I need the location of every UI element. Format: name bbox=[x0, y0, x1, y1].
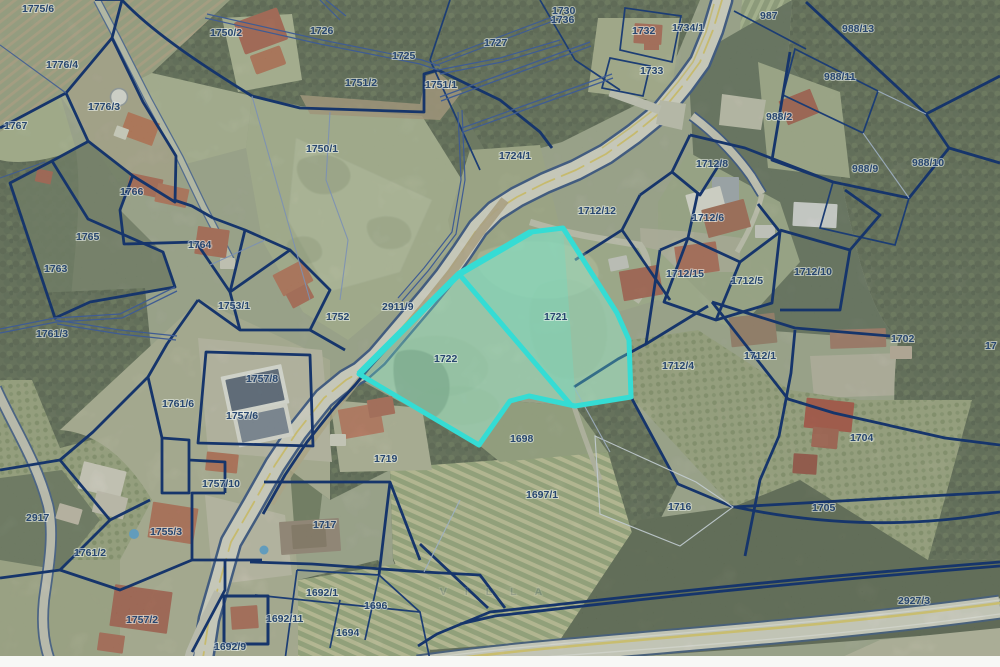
svg-text:988/13: 988/13 bbox=[842, 23, 874, 35]
svg-text:2911/9: 2911/9 bbox=[382, 301, 414, 313]
svg-text:VILLA: VILLA bbox=[440, 586, 560, 598]
svg-text:1704: 1704 bbox=[850, 432, 874, 444]
svg-text:1765: 1765 bbox=[76, 231, 100, 243]
svg-text:1751/2: 1751/2 bbox=[345, 77, 377, 89]
svg-text:1776/3: 1776/3 bbox=[88, 101, 120, 113]
svg-text:1712/5: 1712/5 bbox=[731, 275, 763, 287]
svg-text:1712/10: 1712/10 bbox=[794, 266, 832, 278]
svg-text:1692/1: 1692/1 bbox=[306, 587, 338, 599]
svg-text:1712/12: 1712/12 bbox=[578, 205, 616, 217]
svg-text:1734/1: 1734/1 bbox=[672, 22, 704, 34]
svg-text:1712/1: 1712/1 bbox=[744, 350, 776, 362]
svg-text:1721: 1721 bbox=[544, 311, 568, 323]
svg-text:987: 987 bbox=[760, 10, 778, 22]
svg-text:1766: 1766 bbox=[120, 186, 144, 198]
svg-text:1724/1: 1724/1 bbox=[499, 150, 531, 162]
svg-text:1722: 1722 bbox=[434, 353, 458, 365]
svg-text:1776/4: 1776/4 bbox=[46, 59, 78, 71]
svg-text:1755/3: 1755/3 bbox=[150, 526, 182, 538]
svg-text:1727: 1727 bbox=[484, 37, 508, 49]
svg-text:1702: 1702 bbox=[891, 333, 915, 345]
svg-text:1712/15: 1712/15 bbox=[666, 268, 704, 280]
svg-text:1696: 1696 bbox=[364, 600, 388, 612]
svg-text:1692/11: 1692/11 bbox=[266, 613, 304, 625]
svg-text:988/11: 988/11 bbox=[824, 71, 856, 83]
svg-text:1732: 1732 bbox=[632, 25, 656, 37]
svg-text:1692/9: 1692/9 bbox=[214, 641, 246, 653]
svg-text:1763: 1763 bbox=[44, 263, 68, 275]
svg-text:1757/2: 1757/2 bbox=[126, 614, 158, 626]
svg-text:1717: 1717 bbox=[313, 519, 337, 531]
svg-text:988/10: 988/10 bbox=[912, 157, 944, 169]
svg-text:1757/6: 1757/6 bbox=[226, 410, 258, 422]
svg-text:17: 17 bbox=[985, 340, 997, 352]
svg-text:2917: 2917 bbox=[26, 512, 50, 524]
svg-text:1775/6: 1775/6 bbox=[22, 3, 54, 15]
svg-text:1719: 1719 bbox=[374, 453, 398, 465]
svg-text:1757/8: 1757/8 bbox=[246, 373, 278, 385]
svg-text:1697/1: 1697/1 bbox=[526, 489, 558, 501]
svg-text:1767: 1767 bbox=[4, 120, 28, 132]
svg-text:1761/3: 1761/3 bbox=[36, 328, 68, 340]
svg-text:1712/4: 1712/4 bbox=[662, 360, 694, 372]
svg-text:1730: 1730 bbox=[552, 5, 576, 17]
svg-text:1725: 1725 bbox=[392, 50, 416, 62]
svg-text:1757/10: 1757/10 bbox=[202, 478, 240, 490]
svg-text:1750/2: 1750/2 bbox=[210, 27, 242, 39]
svg-text:1753/1: 1753/1 bbox=[218, 300, 250, 312]
svg-text:2927/3: 2927/3 bbox=[898, 595, 930, 607]
svg-text:1694: 1694 bbox=[336, 627, 360, 639]
svg-text:1705: 1705 bbox=[812, 502, 836, 514]
svg-text:1752: 1752 bbox=[326, 311, 350, 323]
svg-text:1716: 1716 bbox=[668, 501, 692, 513]
svg-text:1750/1: 1750/1 bbox=[306, 143, 338, 155]
svg-text:1751/1: 1751/1 bbox=[425, 79, 457, 91]
svg-text:1712/8: 1712/8 bbox=[696, 158, 728, 170]
svg-text:1726: 1726 bbox=[310, 25, 334, 37]
svg-text:1712/6: 1712/6 bbox=[692, 212, 724, 224]
svg-text:1761/6: 1761/6 bbox=[162, 398, 194, 410]
svg-text:988/2: 988/2 bbox=[766, 111, 792, 123]
svg-text:1761/2: 1761/2 bbox=[74, 547, 106, 559]
svg-text:1733: 1733 bbox=[640, 65, 664, 77]
svg-text:1698: 1698 bbox=[510, 433, 534, 445]
svg-text:1764: 1764 bbox=[188, 239, 212, 251]
svg-text:988/9: 988/9 bbox=[852, 163, 878, 175]
